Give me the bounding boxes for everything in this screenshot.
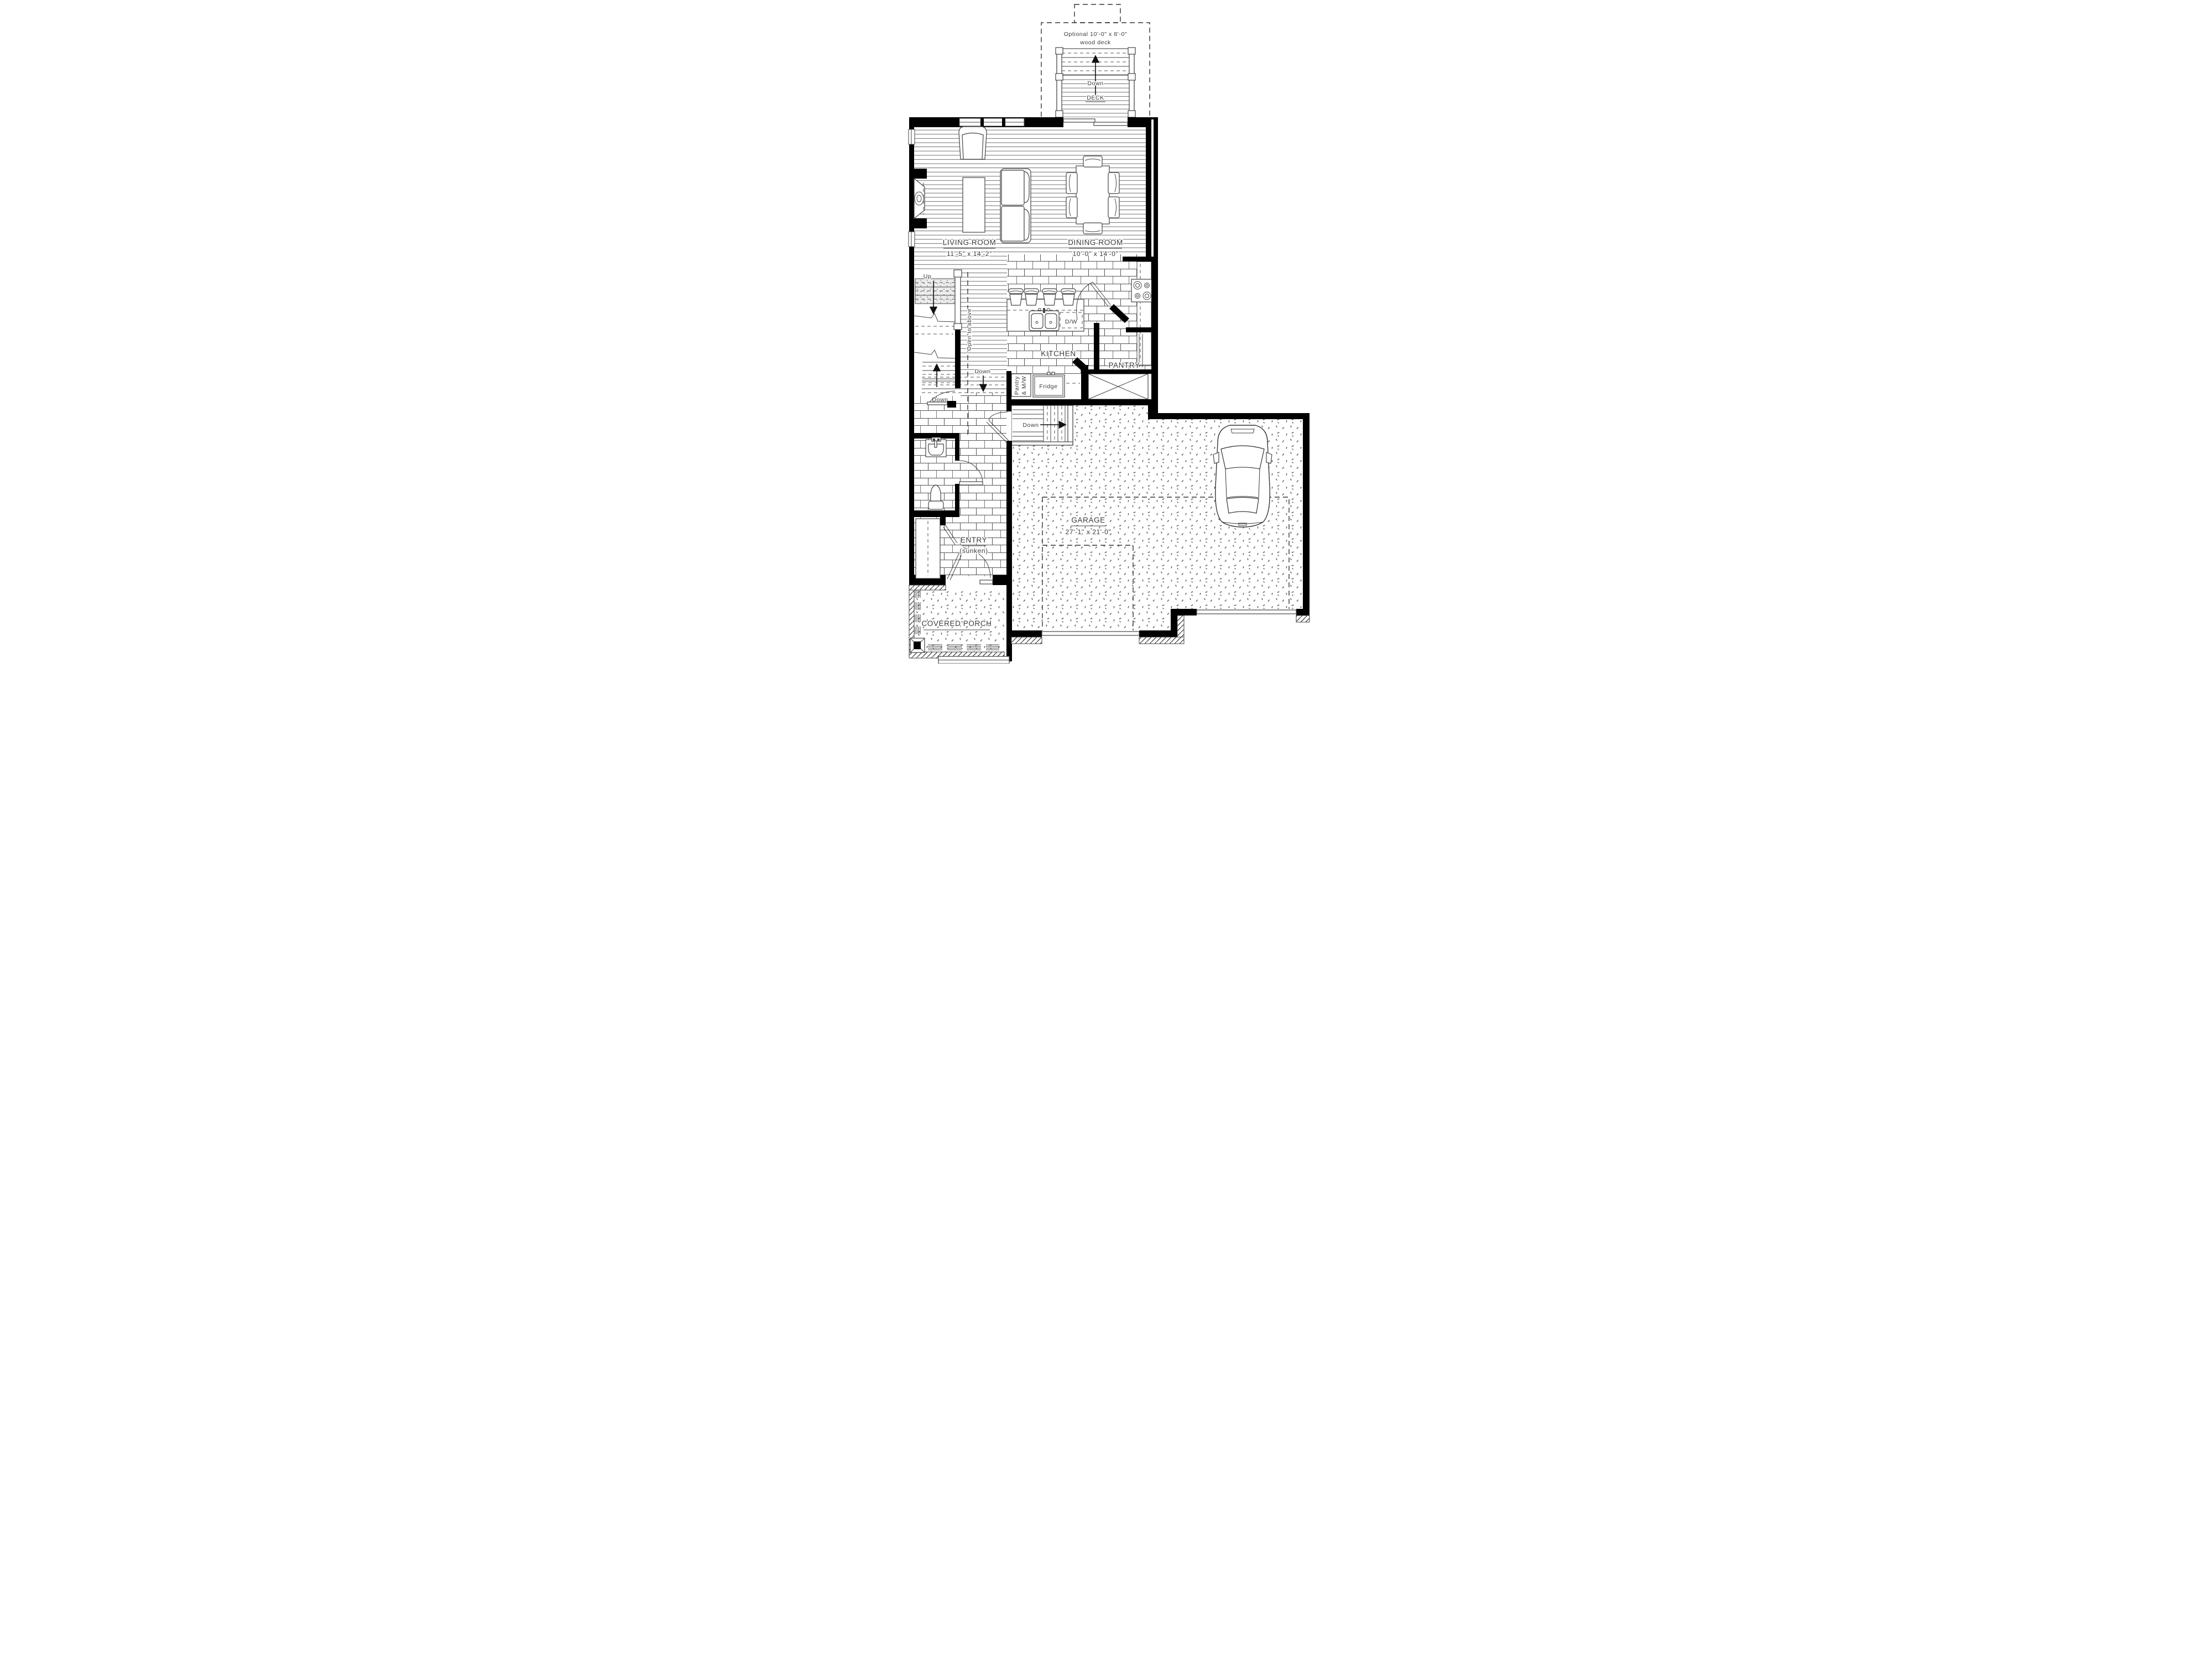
open-to-above-label: Open to above xyxy=(966,309,973,351)
stair-guard-rail xyxy=(955,271,961,328)
hall-garage-wall-upper xyxy=(1006,371,1011,411)
garage-door-2 xyxy=(1197,610,1296,614)
living-room-dim: 11'-5" x 14'-2" xyxy=(947,250,992,258)
living-window-west-1 xyxy=(909,129,915,144)
sofa xyxy=(1000,169,1031,243)
garage-dim-label: 27'-1" x 21'-0" xyxy=(1066,528,1112,536)
fridge-label: Fridge xyxy=(1039,383,1057,390)
garage-stair: Down xyxy=(1011,405,1073,445)
deck-sliding-door xyxy=(1063,117,1128,127)
dishwasher-label: D/W xyxy=(1065,319,1077,325)
car-rear-window xyxy=(1227,498,1259,514)
garage-door-1 xyxy=(1042,632,1139,635)
cooktop xyxy=(1131,279,1152,302)
dining-room-dim: 10'-0" x 14'-0" xyxy=(1073,250,1119,258)
apron-hatch-2 xyxy=(1139,637,1184,644)
car-roof xyxy=(1225,467,1260,498)
fridge-row: Pantry & M/W Fridge xyxy=(1011,372,1148,399)
hall-down-label: Down xyxy=(974,368,990,375)
living-window-west-2 xyxy=(909,232,915,247)
porch-steps xyxy=(938,656,1009,664)
island-sink xyxy=(1029,308,1059,331)
pantry-mw-label-2: & M/W xyxy=(1021,376,1027,395)
fireplace xyxy=(914,169,927,228)
dining-se-jog-wall xyxy=(1123,257,1158,262)
armchair xyxy=(959,127,987,159)
car-top-view xyxy=(1213,425,1272,527)
apron-hatch-4 xyxy=(1296,615,1310,622)
basement-door-leaf xyxy=(927,402,947,405)
garage-south-pier-3 xyxy=(1177,609,1197,615)
deck-down-label: Down xyxy=(1087,80,1103,87)
apron-hatch-1 xyxy=(1011,637,1042,644)
car-mirror-right xyxy=(1266,452,1272,463)
car-mirror-left xyxy=(1213,452,1219,463)
deck-left-rail xyxy=(1057,49,1062,117)
entry-sunken-label: (sunken) xyxy=(959,547,988,555)
garage-label: GARAGE xyxy=(1071,516,1105,524)
garage-stair-down-label: Down xyxy=(1022,422,1039,429)
floor-plan-drawing: Down DECK Optional 10'-0" x 8'-0" wood d… xyxy=(664,0,1548,664)
deck-label: DECK xyxy=(1087,95,1104,101)
bath-south-wall xyxy=(909,510,959,517)
garage-north-wall-east xyxy=(1151,413,1310,419)
entry-label: ENTRY xyxy=(961,536,988,544)
car-windshield xyxy=(1221,446,1264,469)
x-closet-north-wall xyxy=(1081,369,1158,374)
floor-plan-sheet: Down DECK Optional 10'-0" x 8'-0" wood d… xyxy=(664,0,1548,664)
garage-east-wall xyxy=(1303,413,1310,615)
garage-south-pier-4 xyxy=(1296,609,1310,615)
bath-sink xyxy=(926,437,946,457)
pantry-label: PANTRY xyxy=(1108,361,1140,369)
dining-room-label: DINING ROOM xyxy=(1068,238,1123,247)
bath-east-wall-upper xyxy=(955,439,959,461)
garage-north-wall-west xyxy=(1007,399,1158,405)
deck-right-rail xyxy=(1129,49,1134,117)
optional-deck-note-2: wood deck xyxy=(1079,39,1111,46)
hall-garage-wall-lower xyxy=(1006,441,1012,661)
kitchen-label: KITCHEN xyxy=(1041,349,1076,358)
porch-corner-post xyxy=(910,638,925,653)
deck-upper-dashed-outline xyxy=(1074,4,1120,23)
entry-south-wall-east xyxy=(993,575,1007,585)
kitchen-pantry-east-wall xyxy=(1151,262,1158,419)
garage-south-pier-1 xyxy=(1011,630,1042,637)
stair-up-label: Up xyxy=(924,273,932,280)
bath-east-wall-lower xyxy=(955,484,959,510)
living-window-band xyxy=(959,118,1024,127)
living-room-label: LIVING ROOM xyxy=(943,238,997,247)
coffee-table xyxy=(963,178,985,232)
optional-wood-deck: Down DECK Optional 10'-0" x 8'-0" wood d… xyxy=(1041,4,1150,117)
apron-hatch-3 xyxy=(1177,615,1184,637)
garage-south-step-wall xyxy=(1171,609,1177,637)
dining-table xyxy=(1076,166,1109,224)
optional-deck-note-1: Optional 10'-0" x 8'-0" xyxy=(1064,31,1128,38)
covered-porch-label: COVERED PORCH xyxy=(921,619,992,628)
stair-side-wall xyxy=(955,328,961,388)
pantry-mw-label-1: Pantry xyxy=(1014,376,1020,395)
